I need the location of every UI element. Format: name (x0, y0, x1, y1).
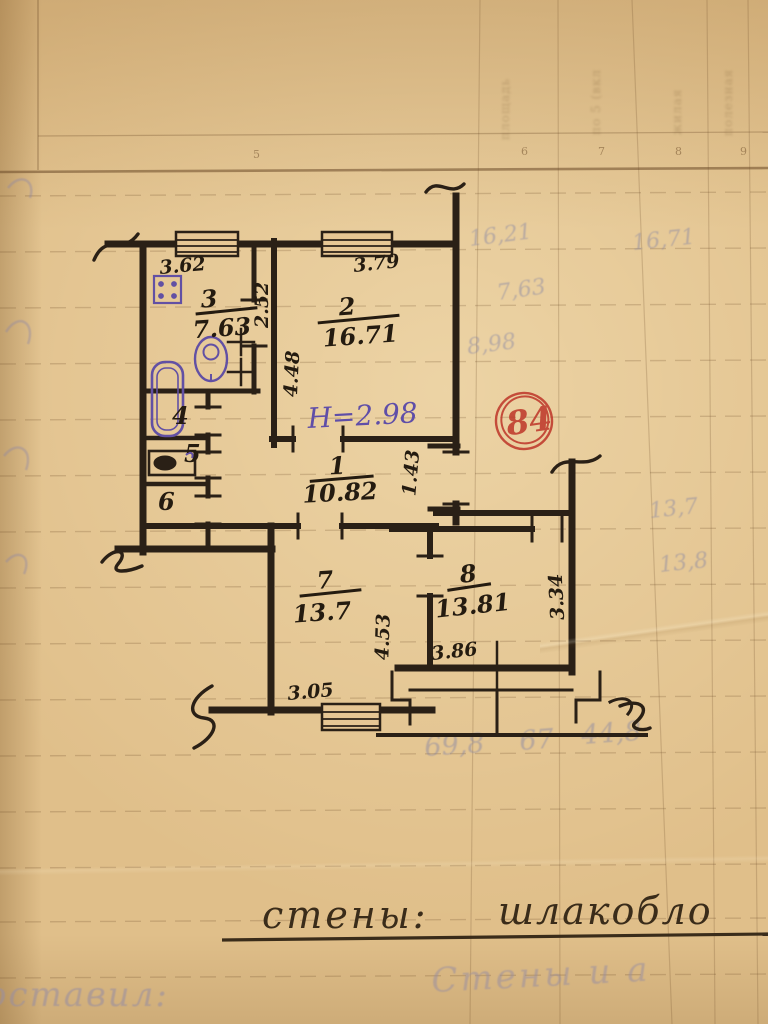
room-number-6: 6 (158, 487, 175, 516)
bleed-word: полезная (721, 69, 735, 136)
bleed-word: площадь (498, 78, 512, 140)
walls-caption-value: шлакобло (498, 889, 713, 933)
room-label-8: 8 13.81 (430, 555, 511, 624)
dimension: 4.48 (280, 350, 304, 397)
stamp-number: 84 (503, 398, 555, 443)
bleed-number: 67 (518, 724, 555, 757)
table-column-numbers: 5 6 7 8 9 (253, 145, 747, 161)
window-symbol (322, 704, 380, 730)
room-label-1: 1 10.82 (300, 449, 378, 509)
inventory-stamp: 84 (492, 389, 555, 452)
column-number: 8 (675, 145, 682, 158)
dimension: 3.79 (352, 250, 400, 277)
bleed-numbers: 16,21 16,71 7,63 8,98 13,7 13,8 69,8 67 … (423, 219, 709, 763)
dimension: 3.34 (545, 573, 569, 620)
room-number: 2 (337, 291, 357, 321)
room-number: 7 (316, 565, 335, 595)
bleed-number: 7,63 (495, 274, 547, 306)
room-number: 1 (328, 450, 346, 480)
floorplan-photo: 5 6 7 8 9 площадь по 5 (вкл жилая полезн… (0, 0, 768, 1024)
column-number: 5 (253, 148, 260, 161)
dimension: 3.86 (430, 638, 478, 665)
room-area: 16.71 (322, 318, 399, 352)
dimension: 2.52 (251, 282, 273, 329)
bleed-number: 13,7 (648, 494, 699, 524)
bleed-number: 13,8 (658, 548, 709, 578)
room-label-3: 3 7.63 (190, 281, 260, 344)
bleed-header-text: площадь по 5 (вкл жилая полезная (498, 69, 735, 140)
dimension: 1.43 (398, 449, 424, 497)
room-number: 8 (457, 558, 478, 589)
room-area: 10.82 (302, 476, 379, 509)
room-area: 13.7 (292, 596, 353, 629)
room-area: 7.63 (192, 311, 252, 344)
bottom-captions: стены: шлакобло оставил: Стены и а (0, 889, 768, 1015)
window-symbol (176, 232, 238, 256)
room-number-5: 5 (184, 439, 201, 468)
column-number: 6 (521, 145, 528, 158)
dimension: 3.05 (287, 679, 335, 705)
dimension: 3.62 (159, 253, 207, 279)
room-area: 13.81 (434, 587, 512, 624)
bleed-number: 8,98 (466, 329, 518, 360)
bleed-word: жилая (670, 89, 684, 135)
bleed-word: по 5 (вкл (589, 69, 603, 135)
column-number: 9 (740, 145, 747, 158)
room-label-7: 7 13.7 (290, 563, 364, 629)
pencil-caption-left: оставил: (0, 975, 169, 1015)
dimension: 4.53 (371, 613, 395, 660)
column-number: 7 (598, 145, 605, 158)
room-number-4: 4 (172, 401, 189, 430)
bleed-squiggles (4, 179, 31, 574)
floor-plan-sheet: 5 6 7 8 9 площадь по 5 (вкл жилая полезн… (0, 0, 768, 1024)
walls-caption-label: стены: (262, 893, 429, 937)
ceiling-height-note: H=2.98 (306, 396, 419, 435)
room-label-2: 2 16.71 (316, 288, 402, 353)
bleed-number: 16,71 (631, 225, 696, 256)
pencil-caption-right: Стены и а (430, 950, 651, 1001)
stove-icon (154, 276, 181, 303)
room-number: 3 (200, 284, 219, 314)
